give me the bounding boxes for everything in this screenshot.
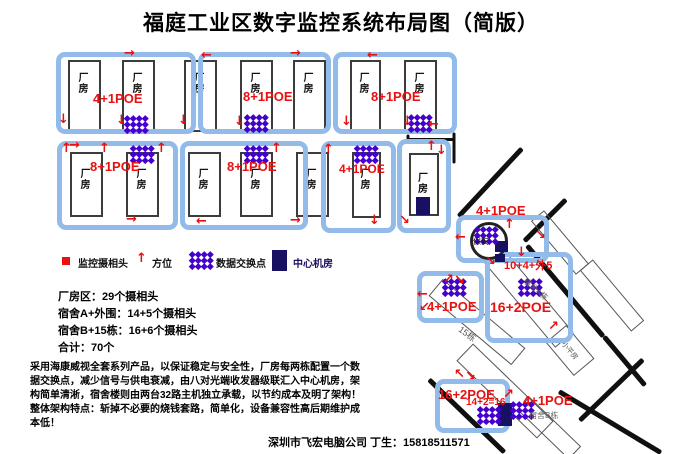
dorm-a-camera-count: 10+4+外5 bbox=[504, 261, 552, 273]
direction-arrow-icon: ↘ bbox=[535, 229, 546, 242]
summary-dorm-a: 宿舍A+外围：14+5个摄相头 bbox=[58, 305, 196, 321]
direction-arrow-icon: ↑ bbox=[99, 142, 110, 155]
factory-building-label: 厂房 bbox=[307, 169, 319, 215]
switch-point-icon bbox=[478, 407, 502, 425]
diagram-canvas: 福庭工业区数字监控系统布局图（简版） 小平房 厂房 厂房 厂房 厂房 厂房 厂房… bbox=[0, 0, 682, 454]
direction-arrow-icon: → bbox=[126, 213, 137, 226]
direction-arrow-icon: ← bbox=[455, 231, 466, 244]
direction-arrow-icon: → bbox=[124, 47, 135, 60]
direction-arrow-icon: ↓ bbox=[116, 114, 127, 127]
direction-arrow-icon: → bbox=[69, 139, 80, 152]
direction-arrow-icon: ← bbox=[196, 215, 207, 228]
security-booth-label: 保安 bbox=[473, 236, 489, 247]
poe-label: 4+1POE bbox=[476, 204, 526, 218]
road-segment bbox=[453, 133, 456, 164]
poe-label: 4+1POE bbox=[523, 394, 573, 408]
direction-arrow-icon: ↘ bbox=[485, 255, 496, 268]
legend-direction-label: 方位 bbox=[152, 255, 172, 270]
direction-arrow-icon: ↑ bbox=[136, 252, 147, 265]
legend-server-room-label: 中心机房 bbox=[293, 255, 333, 270]
poe-label: 4+1POE bbox=[93, 92, 143, 106]
direction-arrow-icon: ↘ bbox=[454, 274, 465, 287]
server-room-marker bbox=[416, 197, 430, 215]
dorm-b-note: 14+2=16 bbox=[466, 398, 506, 409]
direction-arrow-icon: ← bbox=[367, 49, 378, 62]
direction-arrow-icon: ↖ bbox=[454, 368, 465, 381]
direction-arrow-icon: ↘ bbox=[465, 370, 476, 383]
direction-arrow-icon: ↘ bbox=[399, 214, 410, 227]
server-room-icon bbox=[272, 250, 287, 271]
direction-arrow-icon: ↑ bbox=[323, 143, 334, 156]
switch-point-icon bbox=[125, 116, 149, 134]
direction-arrow-icon: ↓ bbox=[516, 246, 527, 259]
summary-total: 合计：70个 bbox=[58, 339, 114, 355]
direction-arrow-icon: ↙ bbox=[419, 301, 430, 314]
camera-icon bbox=[62, 257, 70, 265]
road-segment bbox=[578, 358, 645, 423]
summary-factory: 厂房区：29个摄相头 bbox=[58, 288, 158, 304]
switch-point-icon bbox=[190, 252, 214, 270]
direction-arrow-icon: ↗ bbox=[548, 320, 559, 333]
poe-label: 8+1POE bbox=[371, 90, 421, 104]
direction-arrow-icon: ↑ bbox=[504, 218, 515, 231]
page-title: 福庭工业区数字监控系统布局图（简版） bbox=[0, 7, 682, 37]
poe-label: 8+1POE bbox=[227, 160, 277, 174]
legend-camera-label: 监控摄相头 bbox=[78, 255, 128, 270]
direction-arrow-icon: ↑ bbox=[271, 142, 282, 155]
direction-arrow-icon: → bbox=[290, 214, 301, 227]
poe-label: 4+1POE bbox=[427, 300, 477, 314]
switch-point-icon bbox=[245, 115, 269, 133]
direction-arrow-icon: ← bbox=[201, 49, 212, 62]
direction-arrow-icon: ↑ bbox=[156, 142, 167, 155]
poe-label: 8+1POE bbox=[243, 90, 293, 104]
dorm-b-label: 宿舍B栋 bbox=[529, 410, 558, 421]
summary-dorm-b: 宿舍B+15栋：16+6个摄相头 bbox=[58, 322, 197, 338]
direction-arrow-icon: ↓ bbox=[341, 115, 352, 128]
direction-arrow-icon: ← bbox=[428, 118, 439, 131]
direction-arrow-icon: ↓ bbox=[436, 144, 447, 157]
direction-arrow-icon: ↓ bbox=[234, 115, 245, 128]
poe-label: 8+1POE bbox=[90, 160, 140, 174]
system-description: 采用海康威视全套系列产品，以保证稳定与安全性，厂房每两栋配置一个数据交换点，减少… bbox=[30, 361, 368, 431]
direction-arrow-icon: ↓ bbox=[178, 114, 189, 127]
direction-arrow-icon: ↗ bbox=[443, 273, 454, 286]
company-contact: 深圳市飞宏电脑公司 丁生：15818511571 bbox=[268, 434, 470, 450]
legend-switch-label: 数据交换点 bbox=[216, 255, 266, 270]
direction-arrow-icon: ↓ bbox=[402, 115, 413, 128]
poe-label: 4+1POE bbox=[339, 163, 385, 176]
direction-arrow-icon: ↓ bbox=[369, 214, 380, 227]
direction-arrow-icon: ↗ bbox=[503, 388, 514, 401]
direction-arrow-icon: ↓ bbox=[58, 113, 69, 126]
direction-arrow-icon: → bbox=[290, 47, 301, 60]
